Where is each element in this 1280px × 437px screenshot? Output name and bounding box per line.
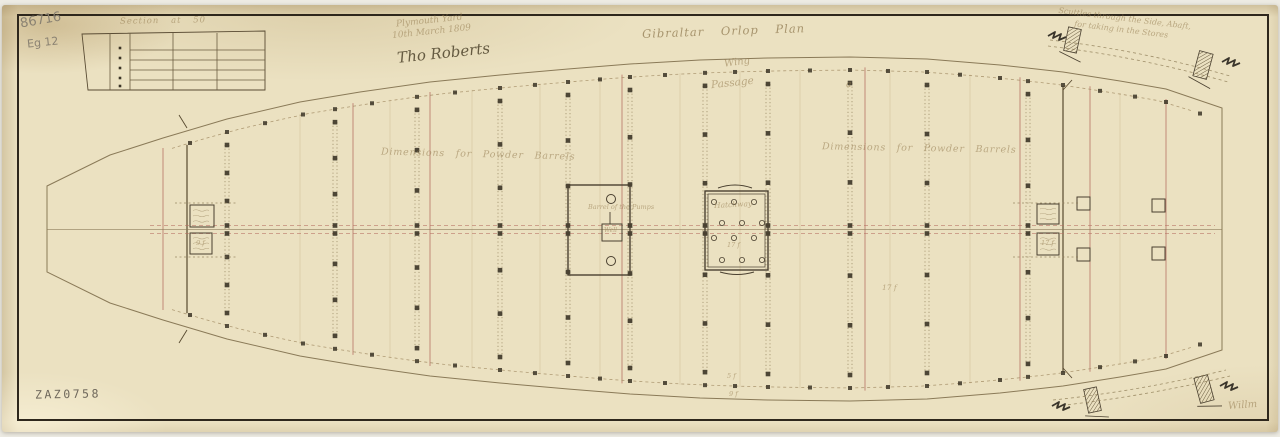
ship-deck-plan-drawing [0,0,1280,437]
scanned-ship-plan-sheet: 86716 Eg 12 Section at 50 Plymouth Yard … [0,0,1280,437]
